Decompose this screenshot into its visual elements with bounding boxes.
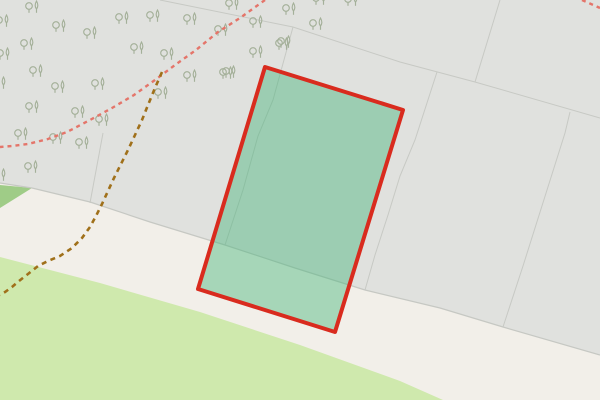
map-canvas[interactable] xyxy=(0,0,600,400)
map-viewport[interactable] xyxy=(0,0,600,400)
